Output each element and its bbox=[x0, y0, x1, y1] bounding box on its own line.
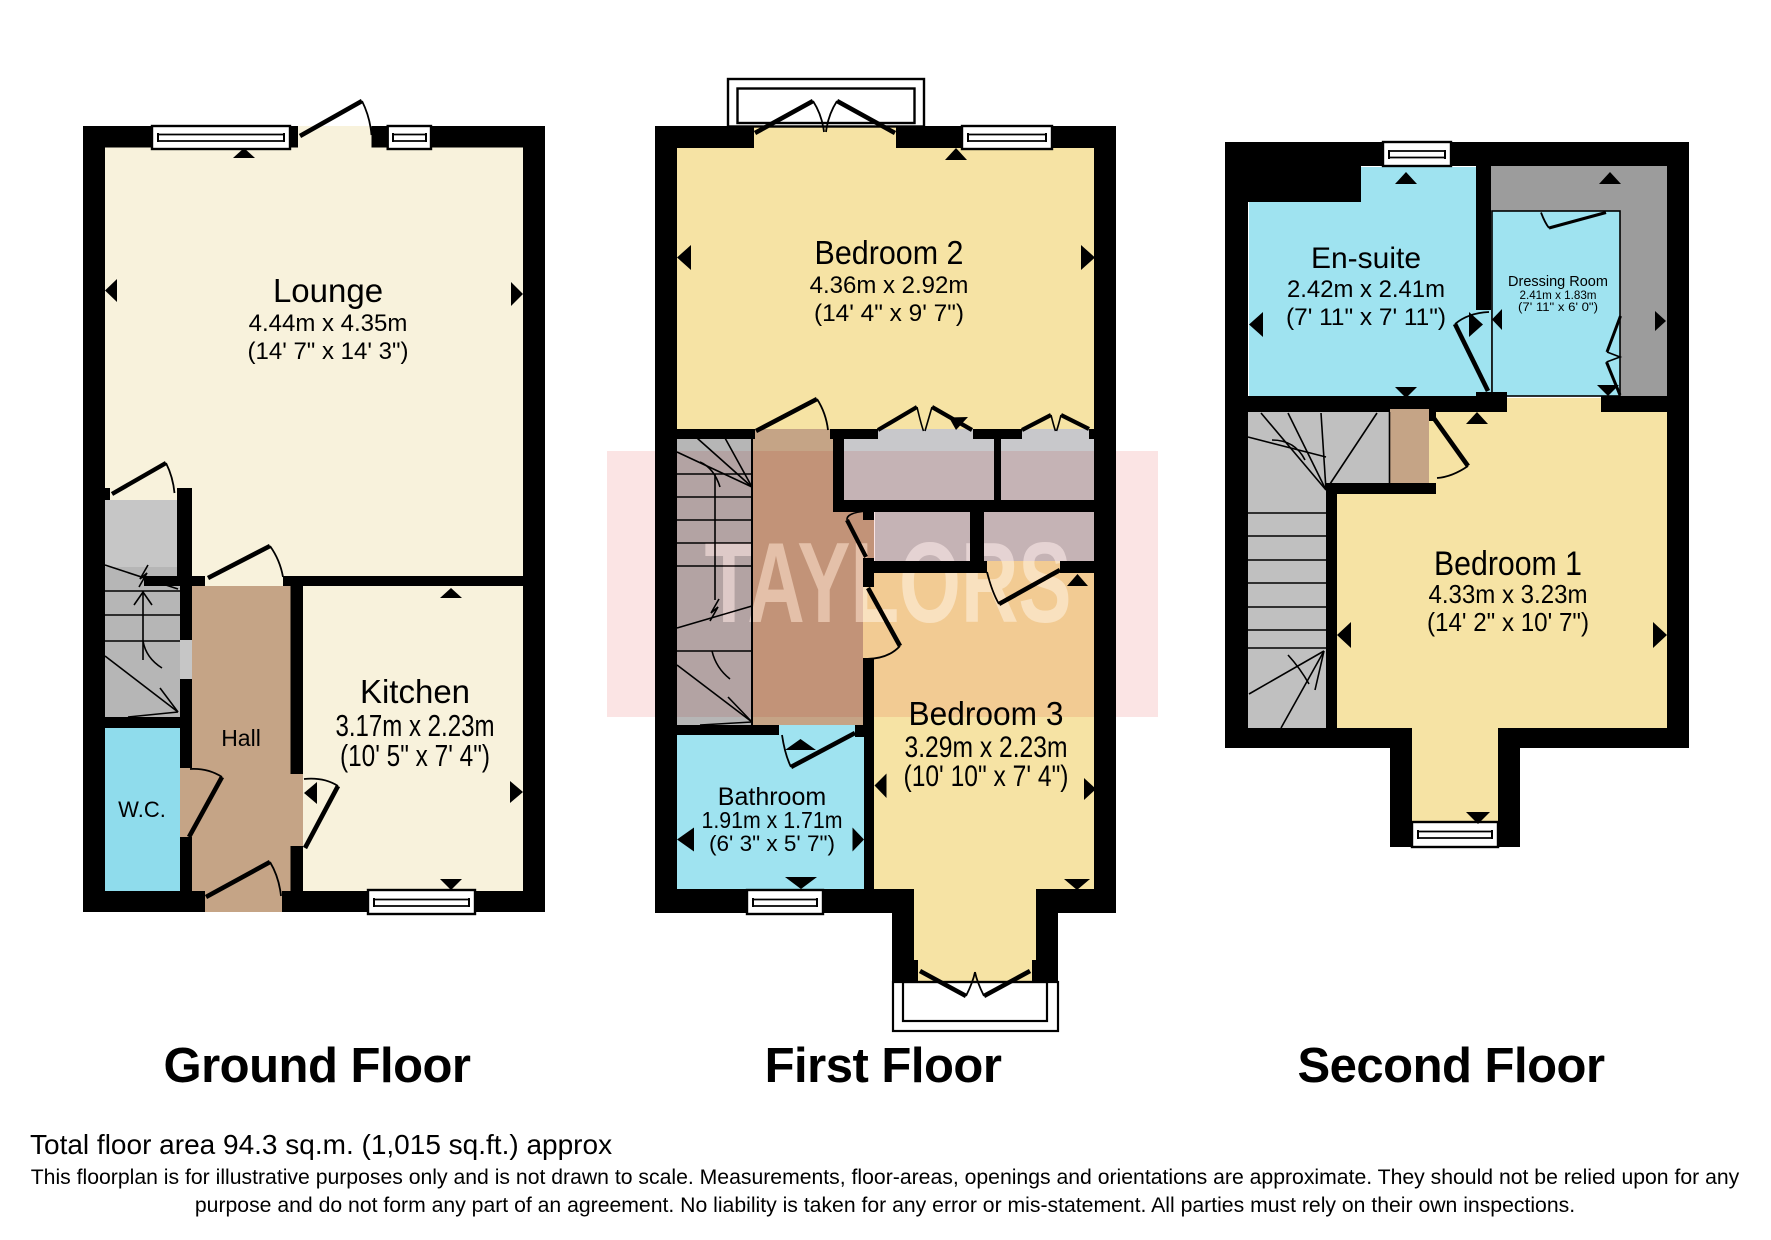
svg-text:4.36m x 2.92m: 4.36m x 2.92m bbox=[810, 272, 969, 299]
svg-text:(14' 2" x 10' 7"): (14' 2" x 10' 7") bbox=[1427, 607, 1589, 637]
svg-text:(7' 11" x 6' 0"): (7' 11" x 6' 0") bbox=[1518, 302, 1598, 314]
svg-text:4.33m x 3.23m: 4.33m x 3.23m bbox=[1429, 579, 1588, 609]
svg-text:Ground Floor: Ground Floor bbox=[164, 1039, 471, 1093]
svg-text:Bedroom 2: Bedroom 2 bbox=[815, 234, 964, 271]
svg-text:2.42m x 2.41m: 2.42m x 2.41m bbox=[1287, 276, 1445, 303]
svg-text:(10' 10" x 7' 4"): (10' 10" x 7' 4") bbox=[904, 760, 1069, 793]
svg-text:(14' 4" x 9' 7"): (14' 4" x 9' 7") bbox=[814, 300, 964, 327]
svg-text:Kitchen: Kitchen bbox=[360, 673, 470, 710]
svg-text:1.91m x 1.71m: 1.91m x 1.71m bbox=[702, 807, 843, 833]
svg-text:TAYLORS: TAYLORS bbox=[705, 520, 1072, 647]
svg-text:Total floor area 94.3 sq.m. (1: Total floor area 94.3 sq.m. (1,015 sq.ft… bbox=[30, 1129, 612, 1160]
svg-text:(14' 7" x 14' 3"): (14' 7" x 14' 3") bbox=[248, 338, 409, 365]
svg-text:(7' 11" x 7' 11"): (7' 11" x 7' 11") bbox=[1286, 304, 1446, 331]
svg-text:En-suite: En-suite bbox=[1311, 242, 1421, 275]
svg-text:First Floor: First Floor bbox=[765, 1039, 1002, 1093]
svg-text:(10' 5" x 7' 4"): (10' 5" x 7' 4") bbox=[340, 738, 490, 773]
svg-text:Second Floor: Second Floor bbox=[1297, 1039, 1605, 1093]
svg-text:purpose and do not form any pa: purpose and do not form any part of an a… bbox=[195, 1194, 1575, 1217]
svg-text:2.41m x 1.83m: 2.41m x 1.83m bbox=[1520, 288, 1597, 302]
svg-text:(6' 3" x 5' 7"): (6' 3" x 5' 7") bbox=[709, 831, 835, 856]
svg-text:W.C.: W.C. bbox=[118, 797, 166, 822]
svg-text:Hall: Hall bbox=[221, 725, 261, 751]
svg-text:Lounge: Lounge bbox=[273, 272, 383, 309]
svg-text:4.44m x 4.35m: 4.44m x 4.35m bbox=[249, 310, 408, 337]
svg-text:This floorplan is for illustra: This floorplan is for illustrative purpo… bbox=[31, 1166, 1740, 1189]
svg-text:Bedroom 1: Bedroom 1 bbox=[1434, 545, 1582, 583]
